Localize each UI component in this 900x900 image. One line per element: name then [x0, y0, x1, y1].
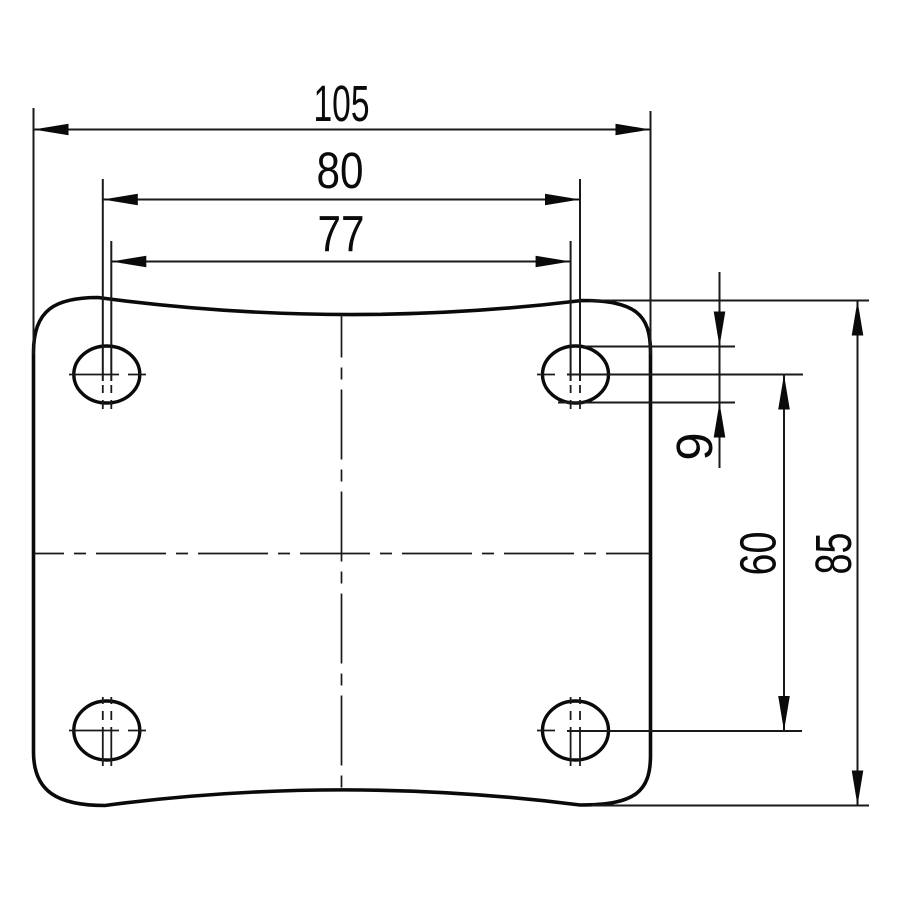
svg-text:77: 77: [318, 206, 365, 263]
svg-text:9: 9: [666, 432, 723, 460]
svg-text:60: 60: [729, 532, 786, 576]
svg-text:80: 80: [317, 142, 364, 199]
svg-text:105: 105: [314, 75, 370, 132]
svg-text:85: 85: [805, 533, 862, 575]
